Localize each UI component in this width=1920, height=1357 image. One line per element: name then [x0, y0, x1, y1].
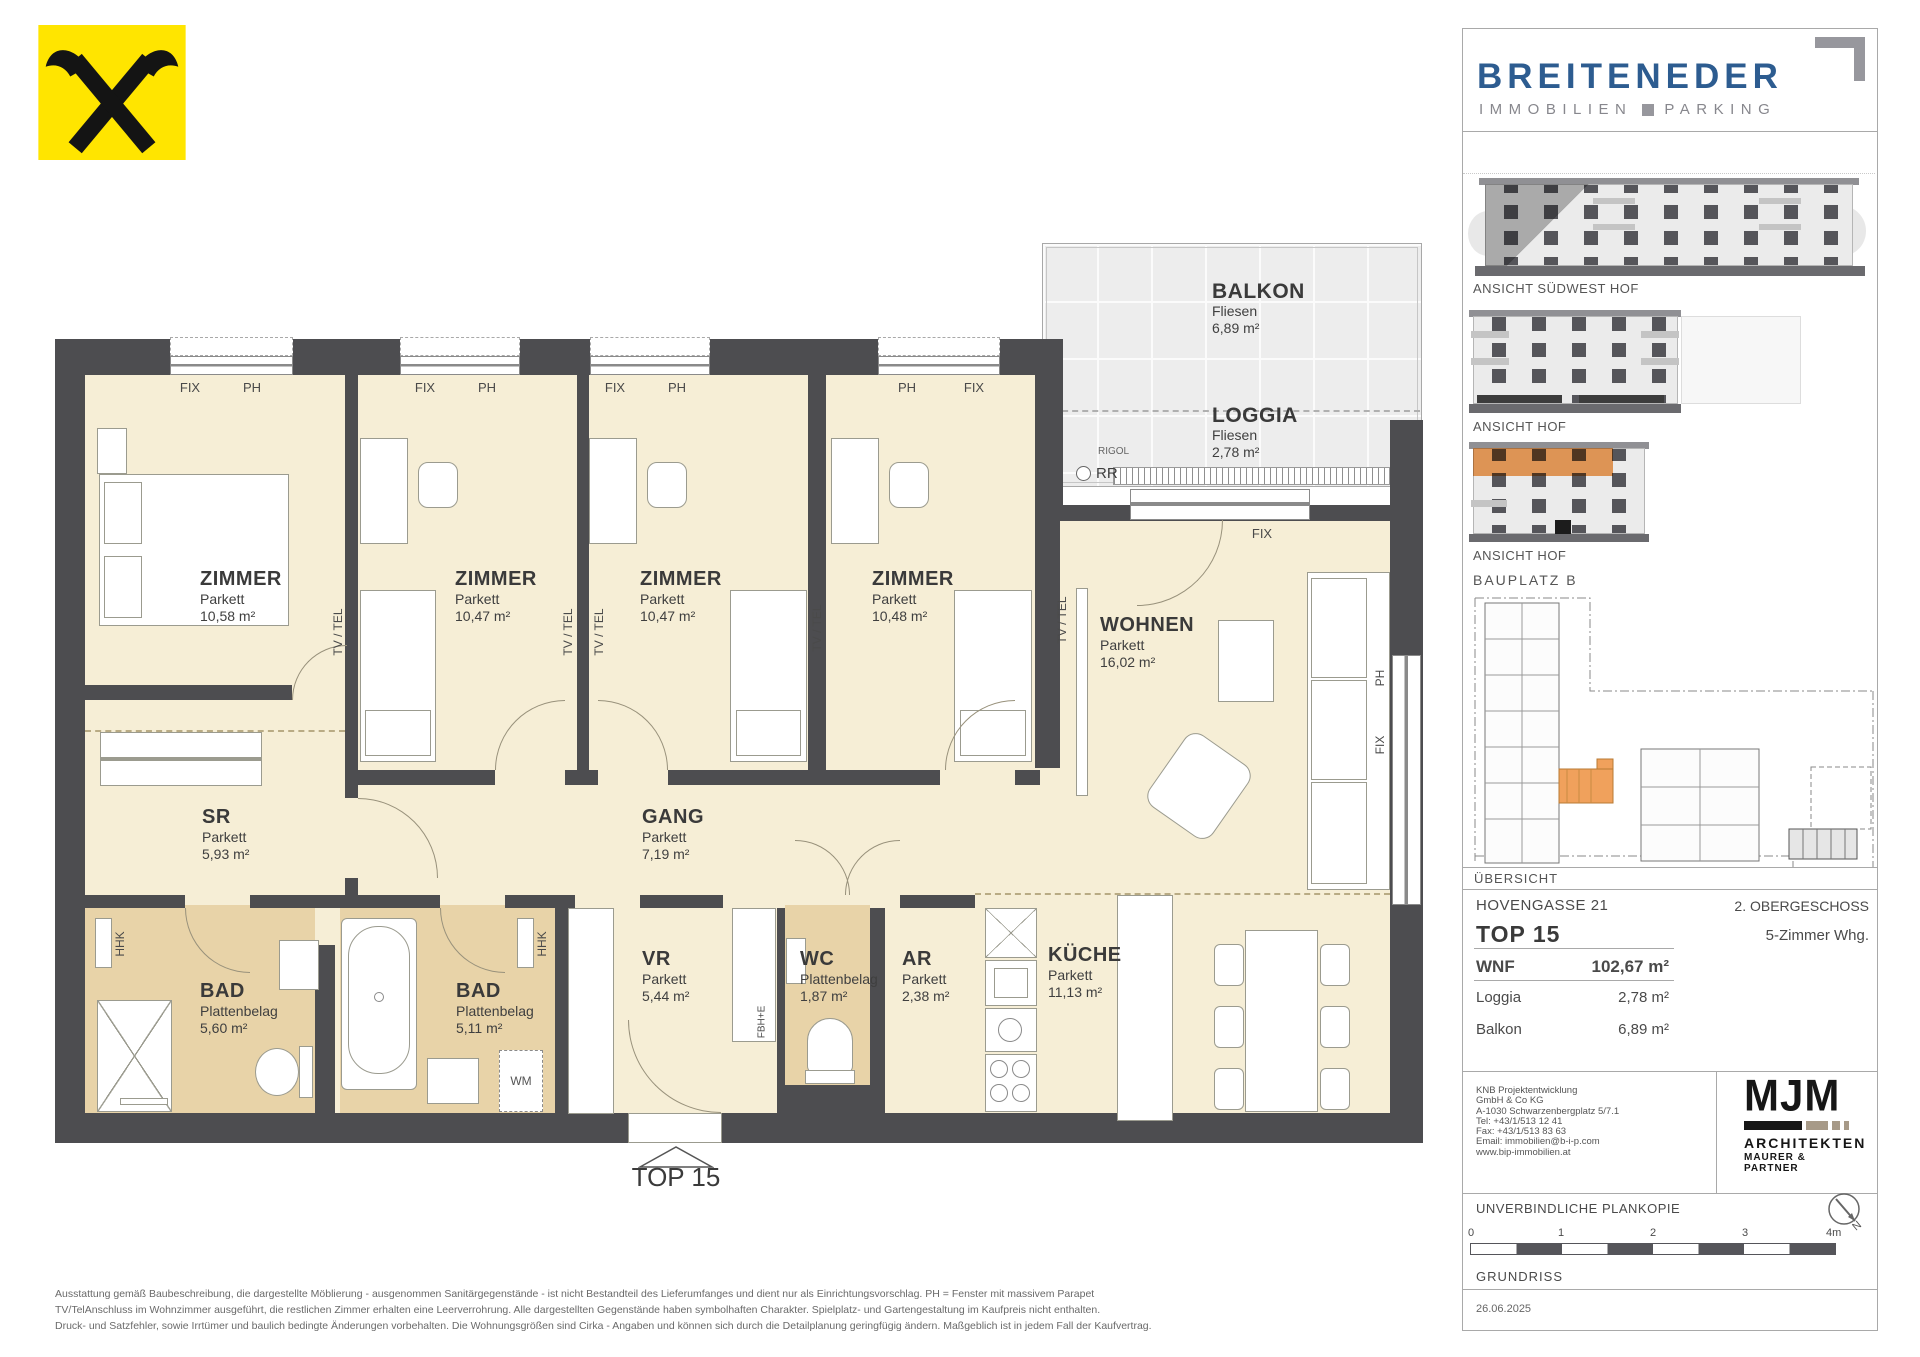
room-label-vr: VR Parkett 5,44 m² [642, 948, 689, 1005]
disclaimer: Ausstattung gemäß Baubeschreibung, die d… [55, 1286, 1195, 1334]
room-area: 5,93 m² [202, 846, 249, 863]
room-name: LOGGIA [1212, 404, 1298, 427]
room-area: 16,02 m² [1100, 654, 1194, 671]
balcony-slab [1471, 500, 1507, 507]
wall [785, 1085, 870, 1113]
wall [55, 1113, 628, 1143]
room-floor: Pl​attenbelag [800, 971, 878, 988]
room-floor: Parkett [872, 591, 954, 608]
site-plan [1463, 561, 1877, 867]
room-floor: Parkett [642, 971, 689, 988]
scale-tick: 4m [1826, 1227, 1841, 1239]
rainwater-pipe-icon [1076, 466, 1091, 481]
project-street: HOVENGASSE 21 [1476, 897, 1608, 914]
wall [345, 770, 358, 798]
room-floor: Plattenbelag [200, 1003, 278, 1020]
washbasin [427, 1058, 479, 1104]
room-floor: Parkett [640, 591, 722, 608]
wall [577, 375, 589, 770]
wnf-label: WNF [1476, 957, 1515, 977]
window-type-label: FIX [605, 380, 625, 395]
highlighted-unit [1559, 759, 1613, 803]
architect-mark: MJM [1744, 1074, 1854, 1118]
north-letter: N [1850, 1219, 1864, 1233]
datum-line [1463, 173, 1875, 174]
wall [345, 375, 358, 770]
sink-basin [998, 1018, 1022, 1042]
chair [1214, 1006, 1244, 1048]
window [170, 356, 293, 375]
shaded-gable [1485, 184, 1603, 266]
brand-tagline: IMMOBILIEN PARKING [1479, 101, 1776, 118]
sofa-cushion [1311, 680, 1367, 780]
project-level: 2. OBERGESCHOSS [1651, 898, 1869, 914]
wall [640, 895, 723, 908]
plan-sheet: { "colors": { "wall_gray": "#4D4D50", "r… [0, 0, 1920, 1357]
window-type-label: PH [668, 380, 686, 395]
divider [1463, 867, 1877, 868]
unit-number: TOP 15 [1476, 921, 1560, 948]
room-label-bad1: BAD Plattenbelag 5,60 m² [200, 980, 278, 1037]
hhk-label: HHK [535, 931, 549, 956]
wall [1035, 520, 1060, 768]
room-area: 5,60 m² [200, 1020, 278, 1037]
room-name: KÜCHE [1048, 944, 1122, 967]
developer-line: www.bip-immobilien.at [1476, 1148, 1619, 1158]
room-label-bad2: BAD Plattenbelag 5,11 m² [456, 980, 534, 1037]
hall-cabinet [732, 908, 776, 1042]
burner [1012, 1060, 1030, 1078]
dining-table [1245, 930, 1318, 1112]
room-floor: Plattenbelag [456, 1003, 534, 1020]
brand-box: BREITENEDER IMMOBILIEN PARKING [1463, 29, 1877, 132]
room-name: VR [642, 948, 689, 971]
wall [358, 770, 495, 785]
balcony-slab [1471, 358, 1509, 365]
balcony-slab [1471, 331, 1509, 338]
divider [1463, 1289, 1877, 1290]
scale-tick: 2 [1650, 1227, 1656, 1239]
chair [1320, 1068, 1350, 1110]
wall [505, 895, 575, 908]
hall-cabinet [568, 908, 614, 1114]
divider [1463, 1193, 1877, 1194]
room-name: WOHNEN [1100, 614, 1194, 637]
window-type-label: PH [898, 380, 916, 395]
scale-tick: 1 [1558, 1227, 1564, 1239]
tv-tel-label: TV / TEL [331, 608, 345, 655]
brand-square-icon [1642, 104, 1654, 116]
area-row-value: 6,89 m² [1561, 1021, 1669, 1038]
divider [1474, 948, 1674, 949]
wall [722, 1113, 1423, 1143]
room-label-sr: SR Parkett 5,93 m² [202, 806, 249, 863]
wall [55, 339, 85, 1143]
wall [565, 770, 598, 785]
building-c [1789, 829, 1857, 859]
ground-line [1469, 534, 1649, 542]
brand-tagline-left: IMMOBILIEN [1479, 101, 1632, 118]
unit-entrance-label: TOP 15 [620, 1162, 732, 1193]
pillow [365, 710, 431, 756]
floor-plan: WM ZIMMER Parkett 10,58 m² ZIMMER Parket… [0, 0, 1460, 1260]
shower-drain [120, 1098, 168, 1105]
room-floor: Parkett [1100, 637, 1194, 654]
wall [250, 895, 440, 908]
pillow [736, 710, 801, 756]
pillow [104, 556, 142, 618]
hhk-label: HHK [113, 931, 127, 956]
brand-tagline-right: PARKING [1664, 101, 1776, 118]
fridge [985, 908, 1037, 958]
desk [831, 438, 879, 544]
developer-contact: KNB Projektentwicklung GmbH & Co KG A-10… [1476, 1086, 1619, 1158]
highlighted-floor [1473, 448, 1613, 476]
room-label-balkon: BALKON Fliesen 6,89 m² [1212, 280, 1305, 337]
toilet [807, 1018, 853, 1074]
disclaimer-line: Druck- und Satzfehler, sowie Irrtümer un… [55, 1318, 1195, 1334]
balcony-slab [1759, 224, 1801, 230]
entrance-threshold [628, 1113, 722, 1143]
room-name: AR [902, 948, 949, 971]
room-floor: Parkett [902, 971, 949, 988]
area-row-label: Balkon [1476, 1021, 1522, 1038]
adjacent-building [1681, 316, 1801, 404]
window-type-label: PH [243, 380, 261, 395]
room-area: 10,47 m² [455, 608, 537, 625]
wall [1015, 770, 1040, 785]
window-type-label: FIX [1373, 736, 1387, 755]
room-area: 7,19 m² [642, 846, 704, 863]
burner [990, 1060, 1008, 1078]
bar [1744, 1121, 1802, 1130]
chair [1320, 1006, 1350, 1048]
window-sill [590, 337, 710, 356]
coffee-table [1218, 620, 1274, 702]
brand-corner-icon [1815, 37, 1865, 81]
area-row-label: Loggia [1476, 989, 1521, 1006]
drawing-type-label: GRUNDRISS [1476, 1269, 1563, 1284]
elevation-label: ANSICHT HOF [1473, 419, 1566, 434]
elevation-label: ANSICHT SÜDWEST HOF [1473, 281, 1639, 296]
room-floor: Parkett [455, 591, 537, 608]
chair [1320, 944, 1350, 986]
room-floor: Parkett [200, 591, 282, 608]
room-floor: Fliesen [1212, 303, 1305, 320]
balcony-slab [1641, 331, 1679, 338]
divider [1474, 980, 1674, 981]
room-label-gang: GANG Parkett 7,19 m² [642, 806, 704, 863]
room-floor: Parkett [642, 829, 704, 846]
desk [589, 438, 637, 544]
room-name: BAD [456, 980, 534, 1003]
window-type-label: PH [1373, 670, 1387, 687]
room-area: 6,89 m² [1212, 320, 1305, 337]
loggia-door-window [1130, 489, 1310, 520]
window-sill [878, 337, 1000, 356]
room-name: BAD [200, 980, 278, 1003]
tv-tel-label: TV / TEL [592, 608, 606, 655]
future-plot [1811, 767, 1871, 829]
window-type-label: PH [478, 380, 496, 395]
room-label-zimmer3: ZIMMER Parkett 10,47 m² [640, 568, 722, 625]
room-area: 5,11 m² [456, 1020, 534, 1037]
architect-logo: MJM ARCHITEKTEN MAURER & PARTNER [1744, 1075, 1854, 1174]
washing-machine-label: WM [510, 1074, 531, 1088]
window [878, 356, 1000, 375]
room-label-loggia: LOGGIA Fliesen 2,78 m² [1212, 404, 1298, 461]
wall [1035, 339, 1063, 520]
room-name: BALKON [1212, 280, 1305, 303]
area-row-value: 2,78 m² [1561, 989, 1669, 1006]
towel-radiator [517, 918, 534, 968]
shower [97, 1000, 172, 1112]
scale-tick: 3 [1742, 1227, 1748, 1239]
base-element [1579, 395, 1664, 403]
wardrobe [100, 732, 262, 786]
tv-tel-label: TV / TEL [1055, 596, 1069, 643]
room-floor: Fliesen [1212, 427, 1298, 444]
window-type-label: FIX [964, 380, 984, 395]
burner [1012, 1084, 1030, 1102]
brand-name: BREITENEDER [1477, 57, 1783, 97]
room-area: 10,58 m² [200, 608, 282, 625]
scale-bar-segments [1470, 1243, 1836, 1255]
building-a [1485, 603, 1559, 863]
room-area: 5,44 m² [642, 988, 689, 1005]
chair [889, 462, 929, 508]
chair [1214, 944, 1244, 986]
wall [900, 895, 975, 908]
architect-bars-icon [1744, 1121, 1854, 1130]
overview-label: ÜBERSICHT [1474, 871, 1558, 886]
elevation-hof-2: ANSICHT HOF [1463, 436, 1877, 566]
room-area: 1,87 m² [800, 988, 878, 1005]
toilet-tank [299, 1046, 313, 1098]
date-label: 26.06.2025 [1476, 1303, 1531, 1315]
pillow [104, 482, 142, 544]
unit-type: 5-Zimmer Whg. [1651, 927, 1869, 944]
room-label-wc: WC Pl​attenbelag 1,87 m² [800, 948, 878, 1005]
divider [1463, 889, 1877, 890]
room-label-ar: AR Parkett 2,38 m² [902, 948, 949, 1005]
room-label-zimmer2: ZIMMER Parkett 10,47 m² [455, 568, 537, 625]
kitchen-counter [1117, 895, 1173, 1121]
washbasin [279, 940, 319, 990]
wall [870, 908, 885, 1113]
divider [1716, 1071, 1717, 1193]
room-label-wohnen: WOHNEN Parkett 16,02 m² [1100, 614, 1194, 671]
window-type-label: FIX [1252, 526, 1272, 541]
room-name: GANG [642, 806, 704, 829]
chair [418, 462, 458, 508]
tv-tel-label: TV / TEL [561, 608, 575, 655]
wall [85, 895, 185, 908]
window-sill [400, 337, 520, 356]
room-floor: Parkett [202, 829, 249, 846]
wnf-value: 102,67 m² [1561, 957, 1669, 977]
room-name: ZIMMER [640, 568, 722, 591]
plan-copy-label: UNVERBINDLICHE PLANKOPIE [1476, 1201, 1680, 1216]
chair [647, 462, 687, 508]
balcony-slab [1593, 198, 1635, 204]
window [1392, 655, 1421, 905]
wall [85, 685, 292, 700]
room-area: 2,78 m² [1212, 444, 1298, 461]
balcony-slab [1641, 358, 1679, 365]
sofa-cushion [1311, 782, 1367, 884]
burner [990, 1084, 1008, 1102]
base-element [1477, 395, 1562, 403]
window [400, 356, 520, 375]
disclaimer-line: Ausstattung gemäß Baubeschreibung, die d… [55, 1286, 1195, 1302]
building-b [1641, 749, 1759, 861]
toilet-base [805, 1070, 855, 1084]
rigol-label: RIGOL [1098, 446, 1129, 457]
bar [1844, 1121, 1849, 1130]
room-name: WC [800, 948, 878, 971]
architect-line1: ARCHITEKTEN [1744, 1135, 1854, 1151]
elevation-southwest: ANSICHT SÜDWEST HOF [1463, 166, 1877, 299]
bar [1806, 1121, 1828, 1130]
room-area: 2,38 m² [902, 988, 949, 1005]
wall [777, 908, 785, 1113]
rr-label: RR [1096, 465, 1118, 482]
balcony-slab [1593, 224, 1635, 230]
room-area: 10,48 m² [872, 608, 954, 625]
scale-tick: 0 [1468, 1227, 1474, 1239]
room-area: 11,13 m² [1048, 984, 1122, 1001]
kitchen-open-boundary [975, 893, 1390, 895]
room-floor: Parkett [1048, 967, 1122, 984]
room-name: SR [202, 806, 249, 829]
ground-line [1475, 266, 1865, 276]
room-name: ZIMMER [455, 568, 537, 591]
architect-line2: MAURER & PARTNER [1744, 1152, 1854, 1174]
washing-machine: WM [499, 1050, 543, 1112]
oven-door [994, 968, 1028, 998]
bar [1832, 1121, 1840, 1130]
fbhe-label: FBH+E [757, 1006, 768, 1039]
tv-sideboard [1076, 588, 1088, 796]
entrance-door [1555, 520, 1571, 534]
balcony-slab [1759, 198, 1801, 204]
chair [1214, 1068, 1244, 1110]
room-name: ZIMMER [200, 568, 282, 591]
window [590, 356, 710, 375]
towel-radiator [95, 918, 112, 968]
wall [668, 770, 940, 785]
tv-tel-label: TV / TEL [810, 604, 824, 651]
window-type-label: FIX [415, 380, 435, 395]
room-label-zimmer1: ZIMMER Parkett 10,58 m² [200, 568, 282, 625]
loggia-grating [1113, 467, 1390, 485]
disclaimer-line: TV/TelAnschluss im Wohnzimmer ausgeführt… [55, 1302, 1195, 1318]
room-label-kueche: KÜCHE Parkett 11,13 m² [1048, 944, 1122, 1001]
wall [808, 375, 826, 770]
room-label-zimmer4: ZIMMER Parkett 10,48 m² [872, 568, 954, 625]
room-name: ZIMMER [872, 568, 954, 591]
desk [360, 438, 408, 544]
window-type-label: FIX [180, 380, 200, 395]
elevation-hof-1: ANSICHT HOF [1463, 301, 1877, 436]
window-sill [170, 337, 293, 356]
title-block: BREITENEDER IMMOBILIEN PARKING ANSICHT S… [1462, 28, 1878, 1331]
bathtub-drain [374, 992, 384, 1002]
sofa-cushion [1311, 578, 1367, 678]
nightstand [97, 428, 127, 474]
ground-line [1469, 404, 1681, 413]
toilet [255, 1048, 299, 1096]
room-area: 10,47 m² [640, 608, 722, 625]
